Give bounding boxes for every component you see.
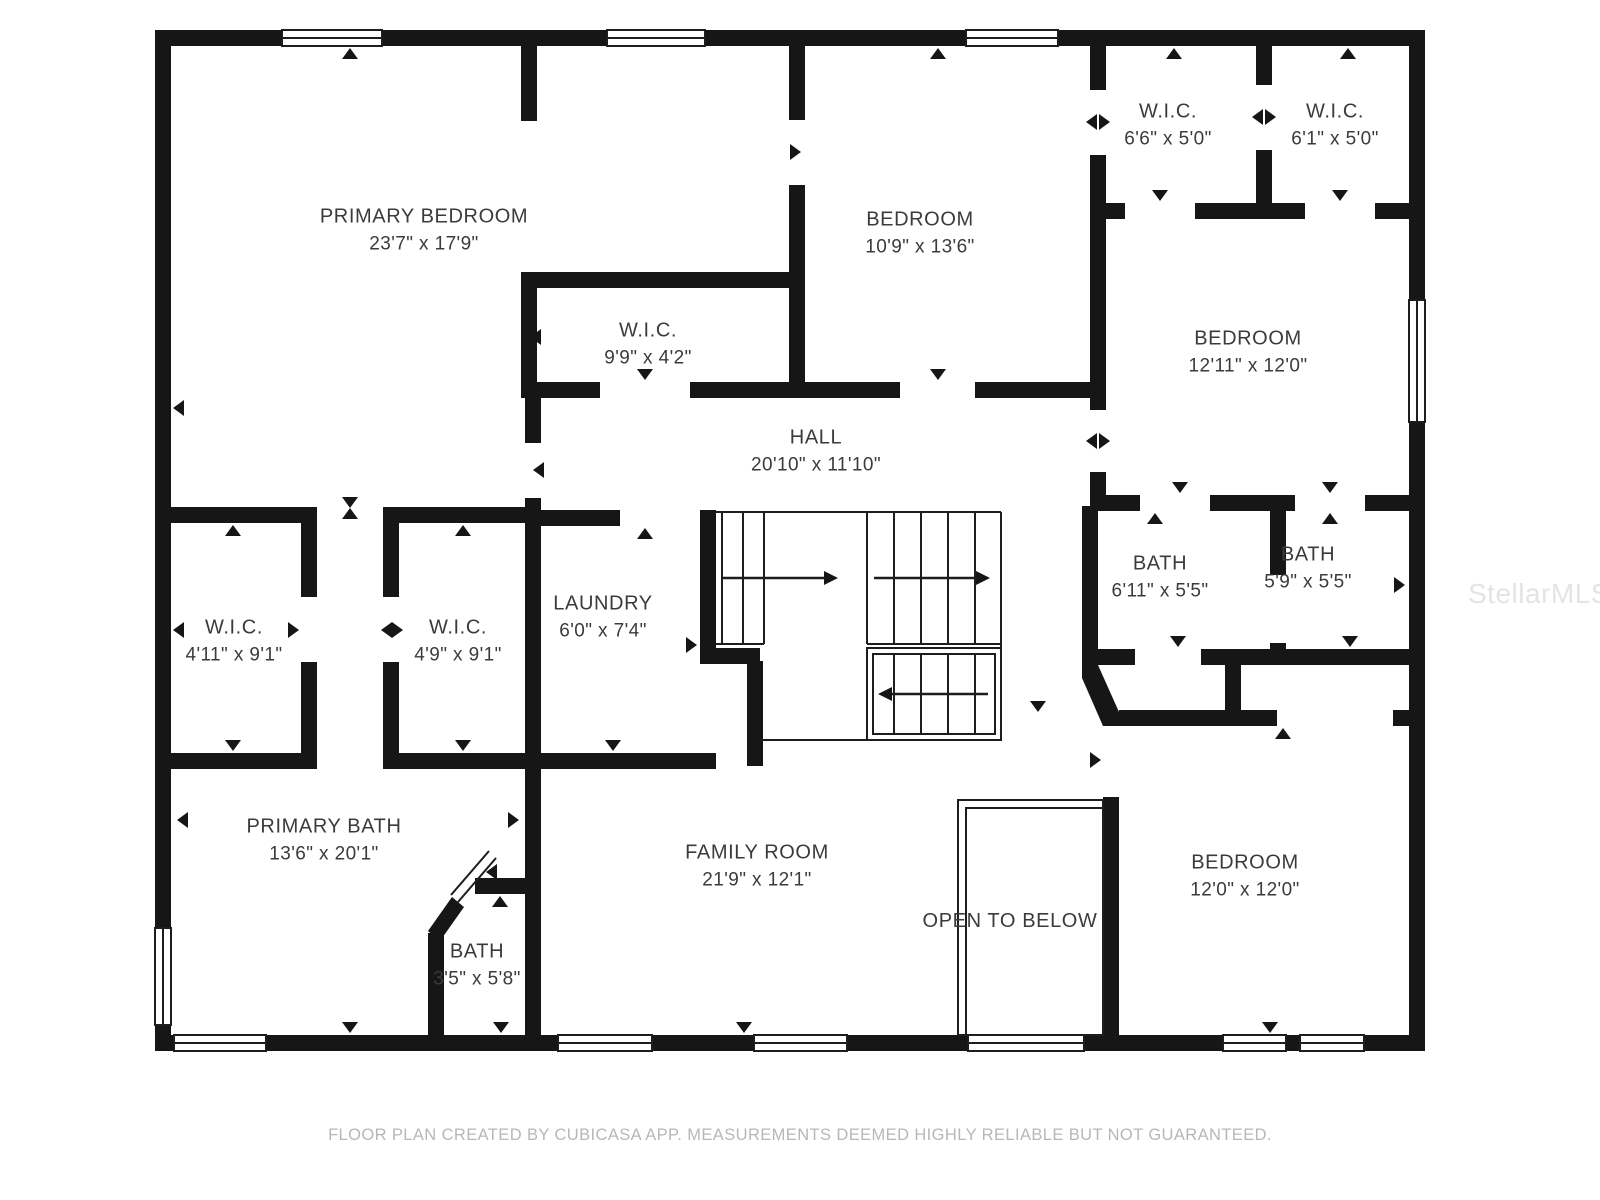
room-name: HALL — [751, 424, 881, 452]
room-label-family-room: FAMILY ROOM 21'9" x 12'1" — [685, 839, 829, 894]
stair-arrow-head — [976, 571, 990, 585]
window — [607, 30, 705, 46]
direction-marker — [1340, 48, 1356, 59]
direction-marker — [225, 525, 241, 536]
direction-marker — [686, 637, 697, 653]
wall-segment — [521, 46, 537, 121]
room-label-bedroom-1211: BEDROOM 12'11" x 12'0" — [1189, 325, 1308, 380]
floor-plan: PRIMARY BEDROOM 23'7" x 17'9" W.I.C. 9'9… — [0, 0, 1600, 1200]
window — [155, 928, 171, 1025]
room-dimensions: 21'9" x 12'1" — [685, 867, 829, 894]
direction-marker — [1090, 752, 1101, 768]
room-name: W.I.C. — [1124, 98, 1211, 126]
direction-marker — [1262, 1022, 1278, 1033]
direction-marker — [1152, 190, 1168, 201]
room-dimensions: 6'1" x 5'0" — [1291, 126, 1378, 153]
window — [1223, 1035, 1286, 1051]
direction-marker — [177, 812, 188, 828]
direction-marker — [455, 525, 471, 536]
stair-arrow-head — [824, 571, 838, 585]
wall-segment — [383, 507, 541, 523]
direction-marker — [342, 508, 358, 519]
room-label-wic-61: W.I.C. 6'1" x 5'0" — [1291, 98, 1378, 153]
direction-marker — [342, 48, 358, 59]
room-dimensions: 5'9" x 5'5" — [1264, 569, 1351, 596]
wall-segment — [155, 753, 317, 769]
direction-marker — [1147, 513, 1163, 524]
room-label-wic-99: W.I.C. 9'9" x 4'2" — [604, 317, 691, 372]
door-opening — [600, 382, 690, 398]
direction-marker — [1394, 577, 1405, 593]
door-opening — [1305, 203, 1375, 219]
door-opening — [900, 382, 975, 398]
room-dimensions: 20'10" x 11'10" — [751, 452, 881, 479]
wall-segment — [1393, 710, 1425, 726]
room-dimensions: 6'0" x 7'4" — [553, 618, 652, 645]
room-name: W.I.C. — [1291, 98, 1378, 126]
wall-segment — [1225, 665, 1241, 710]
window — [282, 30, 382, 46]
window — [1300, 1035, 1364, 1051]
direction-marker — [492, 896, 508, 907]
direction-marker — [342, 497, 358, 508]
door-opening — [301, 597, 317, 662]
direction-marker — [930, 48, 946, 59]
wall-segment — [155, 507, 317, 523]
room-name: OPEN TO BELOW — [923, 907, 1098, 935]
direction-marker — [1322, 482, 1338, 493]
direction-marker — [1332, 190, 1348, 201]
room-name: BATH — [433, 938, 520, 966]
room-name: LAUNDRY — [553, 590, 652, 618]
room-label-bedroom-120: BEDROOM 12'0" x 12'0" — [1190, 849, 1299, 904]
wall-segment — [521, 753, 716, 769]
direction-marker — [1342, 636, 1358, 647]
wall-segment — [521, 272, 805, 288]
room-name: PRIMARY BATH — [246, 813, 401, 841]
room-dimensions: 9'9" x 4'2" — [604, 345, 691, 372]
room-name: BEDROOM — [865, 206, 974, 234]
wall-segment — [155, 30, 171, 1051]
direction-marker — [173, 400, 184, 416]
room-label-primary-bath: PRIMARY BATH 13'6" x 20'1" — [246, 813, 401, 868]
floor-plan-drawing — [0, 0, 1600, 1200]
wall-segment — [1119, 710, 1277, 726]
room-dimensions: 6'11" x 5'5" — [1111, 578, 1208, 605]
stellar-mls-watermark: StellarMLS — [1468, 578, 1600, 610]
wall-segment — [1082, 506, 1098, 653]
direction-marker — [173, 622, 184, 638]
door-opening — [1125, 203, 1195, 219]
direction-marker — [1166, 48, 1182, 59]
room-label-laundry: LAUNDRY 6'0" x 7'4" — [553, 590, 652, 645]
room-name: BATH — [1264, 541, 1351, 569]
room-name: W.I.C. — [604, 317, 691, 345]
room-name: BATH — [1111, 550, 1208, 578]
wall-segment — [383, 753, 541, 769]
room-dimensions: 6'6" x 5'0" — [1124, 126, 1211, 153]
direction-marker — [1172, 482, 1188, 493]
direction-marker — [288, 622, 299, 638]
door-opening — [1140, 495, 1210, 511]
room-name: BEDROOM — [1190, 849, 1299, 877]
direction-marker — [736, 1022, 752, 1033]
direction-marker — [342, 1022, 358, 1033]
wall-diagonal — [428, 897, 464, 941]
door-opening — [620, 510, 700, 526]
wall-segment — [1201, 649, 1425, 665]
wall-segment — [475, 878, 541, 894]
room-label-wic-411: W.I.C. 4'11" x 9'1" — [185, 614, 282, 669]
direction-marker — [1170, 636, 1186, 647]
wall-segment — [1082, 649, 1135, 665]
room-dimensions: 4'9" x 9'1" — [414, 642, 501, 669]
wall-segment — [525, 510, 541, 769]
wall-segment — [789, 46, 805, 398]
direction-marker — [1322, 513, 1338, 524]
direction-marker — [1275, 728, 1291, 739]
wall-chamfer — [1082, 665, 1119, 726]
stair-arrow-head — [878, 687, 892, 701]
room-dimensions: 10'9" x 13'6" — [865, 234, 974, 261]
wall-segment — [1103, 797, 1119, 1035]
room-label-hall: HALL 20'10" x 11'10" — [751, 424, 881, 479]
room-dimensions: 4'11" x 9'1" — [185, 642, 282, 669]
room-dimensions: 12'11" x 12'0" — [1189, 353, 1308, 380]
window — [754, 1035, 847, 1051]
room-name: W.I.C. — [414, 614, 501, 642]
wall-segment — [1409, 30, 1425, 1051]
door-opening — [1295, 495, 1365, 511]
room-label-bedroom-109: BEDROOM 10'9" x 13'6" — [865, 206, 974, 261]
window — [966, 30, 1058, 46]
room-label-wic-66: W.I.C. 6'6" x 5'0" — [1124, 98, 1211, 153]
direction-marker — [225, 740, 241, 751]
room-label-wic-49: W.I.C. 4'9" x 9'1" — [414, 614, 501, 669]
direction-marker — [605, 740, 621, 751]
direction-marker — [493, 1022, 509, 1033]
room-name: W.I.C. — [185, 614, 282, 642]
room-dimensions: 13'6" x 20'1" — [246, 841, 401, 868]
window — [1409, 300, 1425, 422]
window — [968, 1035, 1084, 1051]
room-name: PRIMARY BEDROOM — [320, 203, 528, 231]
wall-segment — [747, 661, 763, 766]
room-label-open-to-below: OPEN TO BELOW — [923, 907, 1098, 935]
room-label-primary-bedroom: PRIMARY BEDROOM 23'7" x 17'9" — [320, 203, 528, 258]
room-label-bath-59: BATH 5'9" x 5'5" — [1264, 541, 1351, 596]
room-label-bath-35: BATH 3'5" x 5'8" — [433, 938, 520, 993]
room-name: BEDROOM — [1189, 325, 1308, 353]
wall-segment — [525, 769, 541, 1035]
direction-marker — [508, 812, 519, 828]
room-dimensions: 3'5" x 5'8" — [433, 966, 520, 993]
direction-marker — [1030, 701, 1046, 712]
direction-marker — [930, 369, 946, 380]
room-dimensions: 12'0" x 12'0" — [1190, 877, 1299, 904]
room-name: FAMILY ROOM — [685, 839, 829, 867]
footer-caption: FLOOR PLAN CREATED BY CUBICASA APP. MEAS… — [0, 1126, 1600, 1145]
room-label-bath-611: BATH 6'11" x 5'5" — [1111, 550, 1208, 605]
room-dimensions: 23'7" x 17'9" — [320, 231, 528, 258]
window — [174, 1035, 266, 1051]
wall-segment — [700, 510, 716, 648]
direction-marker — [637, 528, 653, 539]
direction-marker — [455, 740, 471, 751]
window — [558, 1035, 652, 1051]
